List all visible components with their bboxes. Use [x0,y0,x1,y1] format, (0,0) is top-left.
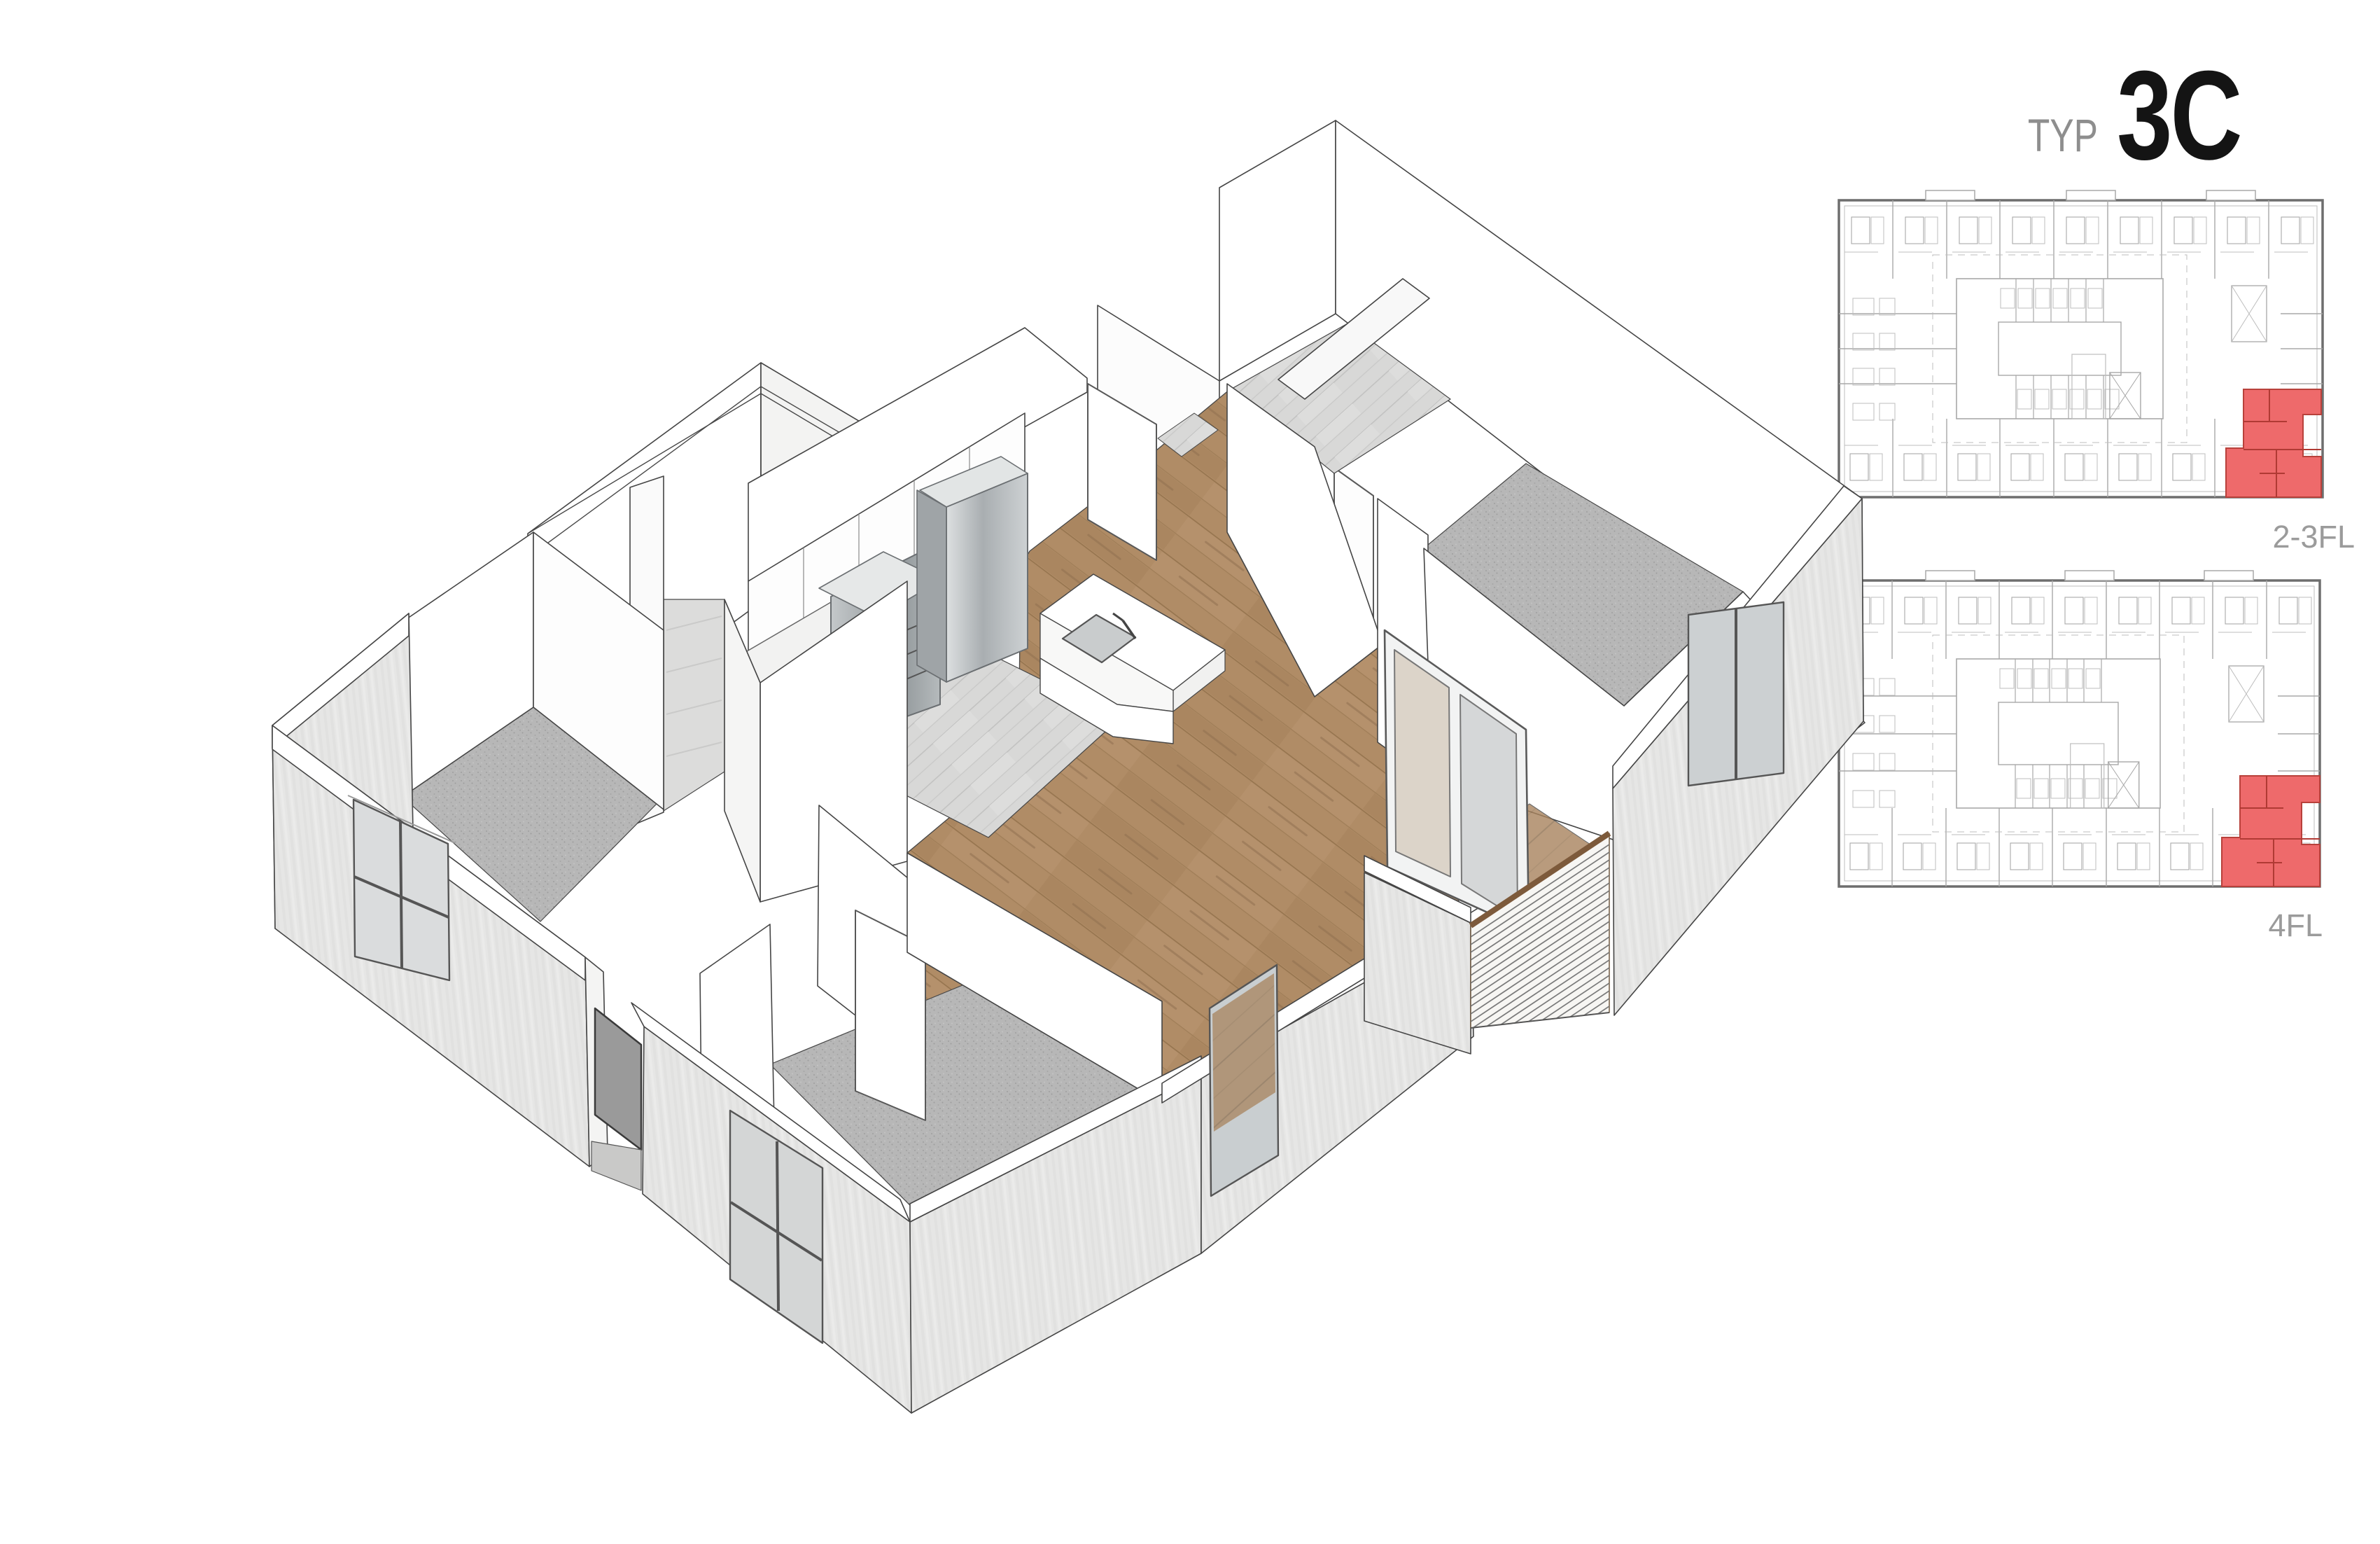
svg-text:TYP: TYP [2028,109,2098,162]
svg-text:3C: 3C [2117,44,2240,186]
svg-text:4FL: 4FL [2268,907,2323,943]
svg-text:2-3FL: 2-3FL [2272,519,2355,555]
